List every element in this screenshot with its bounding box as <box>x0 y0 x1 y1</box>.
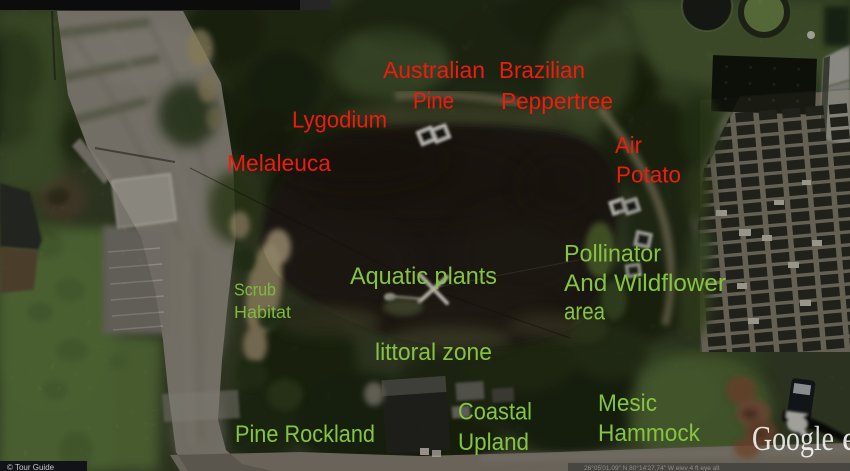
svg-text:Upland: Upland <box>458 429 529 456</box>
svg-text:Hammock: Hammock <box>598 420 701 447</box>
svg-text:Aquatic plants: Aquatic plants <box>350 263 497 290</box>
svg-text:Australian: Australian <box>383 57 485 83</box>
svg-text:© Tour Guide: © Tour Guide <box>7 463 55 471</box>
svg-text:Peppertree: Peppertree <box>501 88 613 114</box>
svg-text:Pollinator: Pollinator <box>564 241 661 268</box>
svg-text:Lygodium: Lygodium <box>292 107 387 133</box>
svg-text:area: area <box>564 299 606 326</box>
svg-text:Mesic: Mesic <box>598 390 657 417</box>
svg-text:Melaleuca: Melaleuca <box>227 150 331 176</box>
svg-text:Pine: Pine <box>413 88 454 114</box>
svg-text:26°05'01.09" N 80°14'27.74" W: 26°05'01.09" N 80°14'27.74" W elev 4 ft … <box>584 464 720 471</box>
svg-text:Scrub: Scrub <box>234 280 276 300</box>
svg-text:Brazilian: Brazilian <box>499 57 585 83</box>
svg-text:Habitat: Habitat <box>234 302 291 322</box>
svg-text:And Wildflower: And Wildflower <box>564 270 726 297</box>
svg-text:Google: Google <box>752 419 834 458</box>
svg-text:Air: Air <box>615 132 642 158</box>
svg-text:e: e <box>842 419 850 458</box>
svg-text:Pine Rockland: Pine Rockland <box>235 421 375 448</box>
svg-text:Potato: Potato <box>616 162 681 188</box>
svg-text:Coastal: Coastal <box>458 399 532 426</box>
svg-text:littoral zone: littoral zone <box>375 339 492 366</box>
